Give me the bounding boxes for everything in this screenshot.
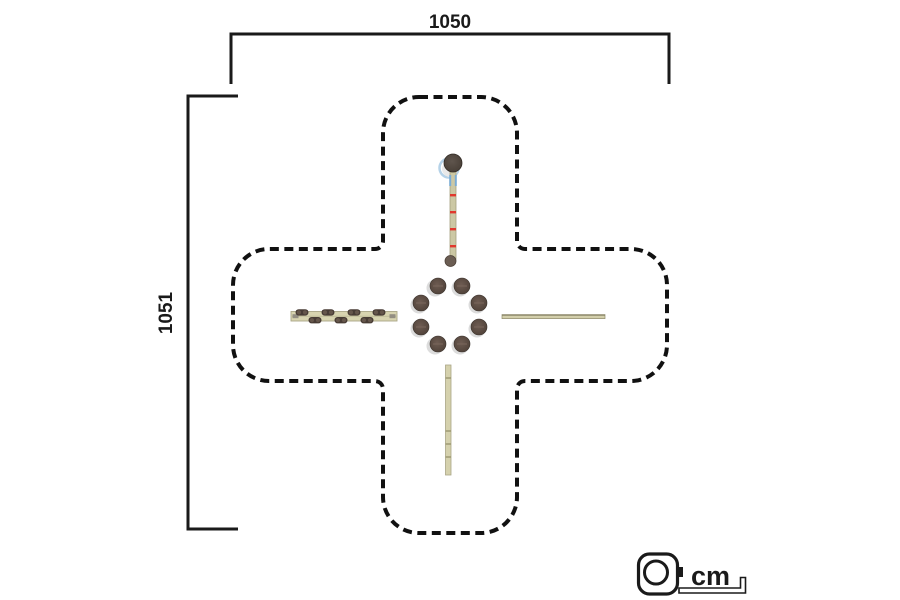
units-legend: cm xyxy=(639,554,746,594)
units-label: cm xyxy=(691,561,730,591)
center-post-ring xyxy=(411,278,488,355)
right-thin-beam xyxy=(502,315,605,319)
width-dimension-label: 1050 xyxy=(429,12,471,33)
height-dimension-line xyxy=(188,96,238,529)
beam-body xyxy=(446,365,452,475)
plan-canvas: 1050 1051 xyxy=(0,0,900,600)
red-mark xyxy=(450,228,456,230)
red-mark xyxy=(450,194,456,196)
width-dimension-line xyxy=(231,34,669,84)
red-mark xyxy=(450,245,456,247)
blue-mark-right xyxy=(455,175,457,186)
beam-end-cap xyxy=(390,314,396,318)
blue-mark-left xyxy=(449,175,451,186)
post-shadows xyxy=(411,280,486,355)
left-stepping-beam xyxy=(291,309,397,323)
height-dimension-label: 1051 xyxy=(156,291,177,334)
pole-top-knob xyxy=(444,154,462,172)
tape-exit-tab xyxy=(678,567,684,577)
tape-reel xyxy=(645,561,668,584)
red-mark xyxy=(450,211,456,213)
top-striped-pole xyxy=(440,154,463,267)
pole-base-post xyxy=(445,256,456,267)
bottom-segmented-beam xyxy=(446,365,452,475)
plan-svg: 1050 1051 xyxy=(0,0,900,600)
